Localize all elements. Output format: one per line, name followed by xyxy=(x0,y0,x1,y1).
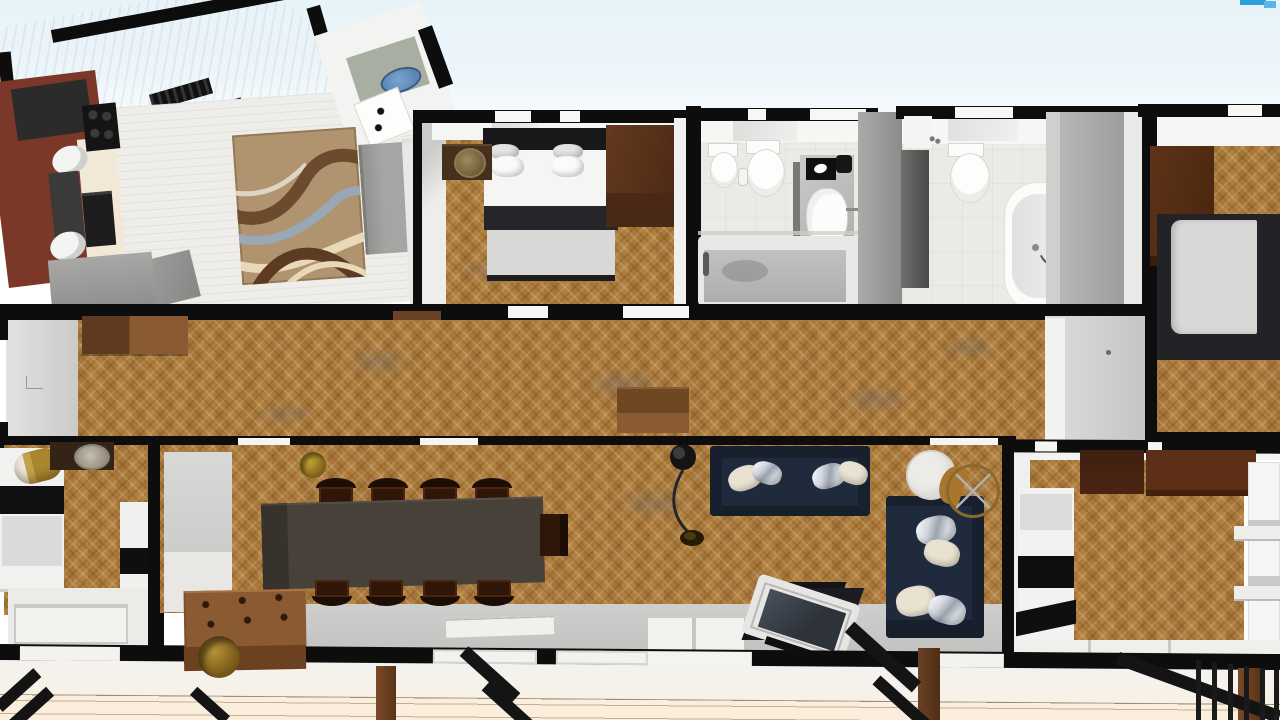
bedroom2-top-wall xyxy=(1138,104,1280,117)
wood-chest-top xyxy=(184,589,307,649)
basket-icon xyxy=(74,444,110,470)
floor-smudge xyxy=(330,340,430,384)
striped-unit-band xyxy=(120,548,150,574)
window-gap xyxy=(1228,105,1262,116)
toilet-brush xyxy=(738,168,748,186)
shelf-board xyxy=(1234,526,1280,541)
hallway-sideboard xyxy=(82,316,188,354)
dark-vanity xyxy=(901,150,929,288)
wardrobe-bedroom4-a xyxy=(1080,450,1144,494)
window-gap xyxy=(495,111,531,122)
shelf-board xyxy=(1234,586,1280,601)
dining-table xyxy=(261,496,545,589)
kitchen-upper-dark-counter xyxy=(11,79,93,141)
door-gap xyxy=(623,306,689,318)
bed2-mattress xyxy=(1171,220,1257,334)
hallway-chest-top xyxy=(617,387,689,413)
rattan-chair-ring xyxy=(946,464,1000,518)
bed1-blanket-band xyxy=(484,206,618,230)
bedroom1-top-wall xyxy=(416,110,688,123)
pillow xyxy=(551,156,584,177)
cooktop xyxy=(82,102,121,151)
bathroom2-right-wall-panel xyxy=(1060,112,1132,314)
floor-plan-3d-render xyxy=(0,0,1280,720)
rug-swirl-pattern xyxy=(232,127,366,285)
toilet3-bowl xyxy=(950,153,990,203)
great-room-entry-gray xyxy=(164,452,232,554)
door-sill-wood xyxy=(393,311,441,320)
bed4-pillow xyxy=(1020,494,1072,530)
dining-chair xyxy=(474,580,514,606)
window-gap xyxy=(560,111,580,122)
window-gap xyxy=(748,109,766,120)
window-gap xyxy=(955,107,1013,118)
threshold-white xyxy=(446,616,555,638)
dining-chair xyxy=(420,580,460,606)
shower-head-icon xyxy=(703,252,709,276)
bed3-black-band xyxy=(0,486,64,514)
wardrobe-bedroom4-b xyxy=(1146,450,1256,496)
railing-bar xyxy=(1212,662,1217,720)
railing-bar xyxy=(1244,666,1249,720)
door-handle-icon xyxy=(1106,350,1111,355)
bed3-mattress xyxy=(2,516,62,566)
wardrobe-bedroom1 xyxy=(606,125,674,195)
bedroom3-window-frame xyxy=(14,604,128,644)
dining-chair xyxy=(312,580,352,606)
bed1-foot-mattress xyxy=(487,230,615,277)
railing-bar xyxy=(1196,660,1201,720)
entry-door-mark xyxy=(26,376,43,389)
floor-smudge xyxy=(240,398,330,430)
toilet2-bowl xyxy=(747,149,785,197)
bathroom-divider-panel xyxy=(858,112,904,314)
railing-bar xyxy=(1228,664,1233,720)
toilet-bowl xyxy=(710,152,738,188)
window-gap xyxy=(938,653,1004,668)
bathroom1-top-wall xyxy=(690,108,878,121)
wood-post xyxy=(918,648,940,720)
bedroom2-top-zone xyxy=(1155,112,1280,146)
gold-planter xyxy=(300,452,326,478)
door-gap xyxy=(508,306,548,318)
shelving-unit xyxy=(1248,462,1280,658)
railing-bar xyxy=(1260,668,1265,720)
pillow xyxy=(491,156,524,177)
oven xyxy=(82,191,117,247)
floor-smudge xyxy=(930,330,1010,366)
door-gap xyxy=(1035,441,1057,451)
window-gap xyxy=(20,646,120,661)
wood-post xyxy=(376,666,396,720)
bedroom1-left-wall xyxy=(413,110,422,314)
vanity-black-item xyxy=(836,155,852,173)
tub-shadow xyxy=(722,260,768,282)
faucet-icon xyxy=(928,134,942,146)
area-rug xyxy=(232,127,366,285)
window-gap xyxy=(556,650,648,665)
floor-smudge xyxy=(820,378,930,420)
plant-basket xyxy=(454,148,486,178)
closet-door xyxy=(1045,318,1065,440)
dining-chair xyxy=(366,580,406,606)
bed4-black-band xyxy=(1018,556,1074,588)
bed1-foot-edge xyxy=(487,275,615,281)
railing-bar xyxy=(1274,670,1279,720)
wardrobe-bedroom1-front xyxy=(606,193,674,227)
glass-screen xyxy=(698,231,874,235)
hallway-chest-front xyxy=(617,413,689,433)
dining-chair-end xyxy=(540,514,568,556)
hallway-left-wall-top xyxy=(0,318,8,340)
gold-planter xyxy=(198,636,240,678)
blue-marker-icon xyxy=(1240,0,1266,5)
blue-marker-icon xyxy=(1264,1,1276,8)
